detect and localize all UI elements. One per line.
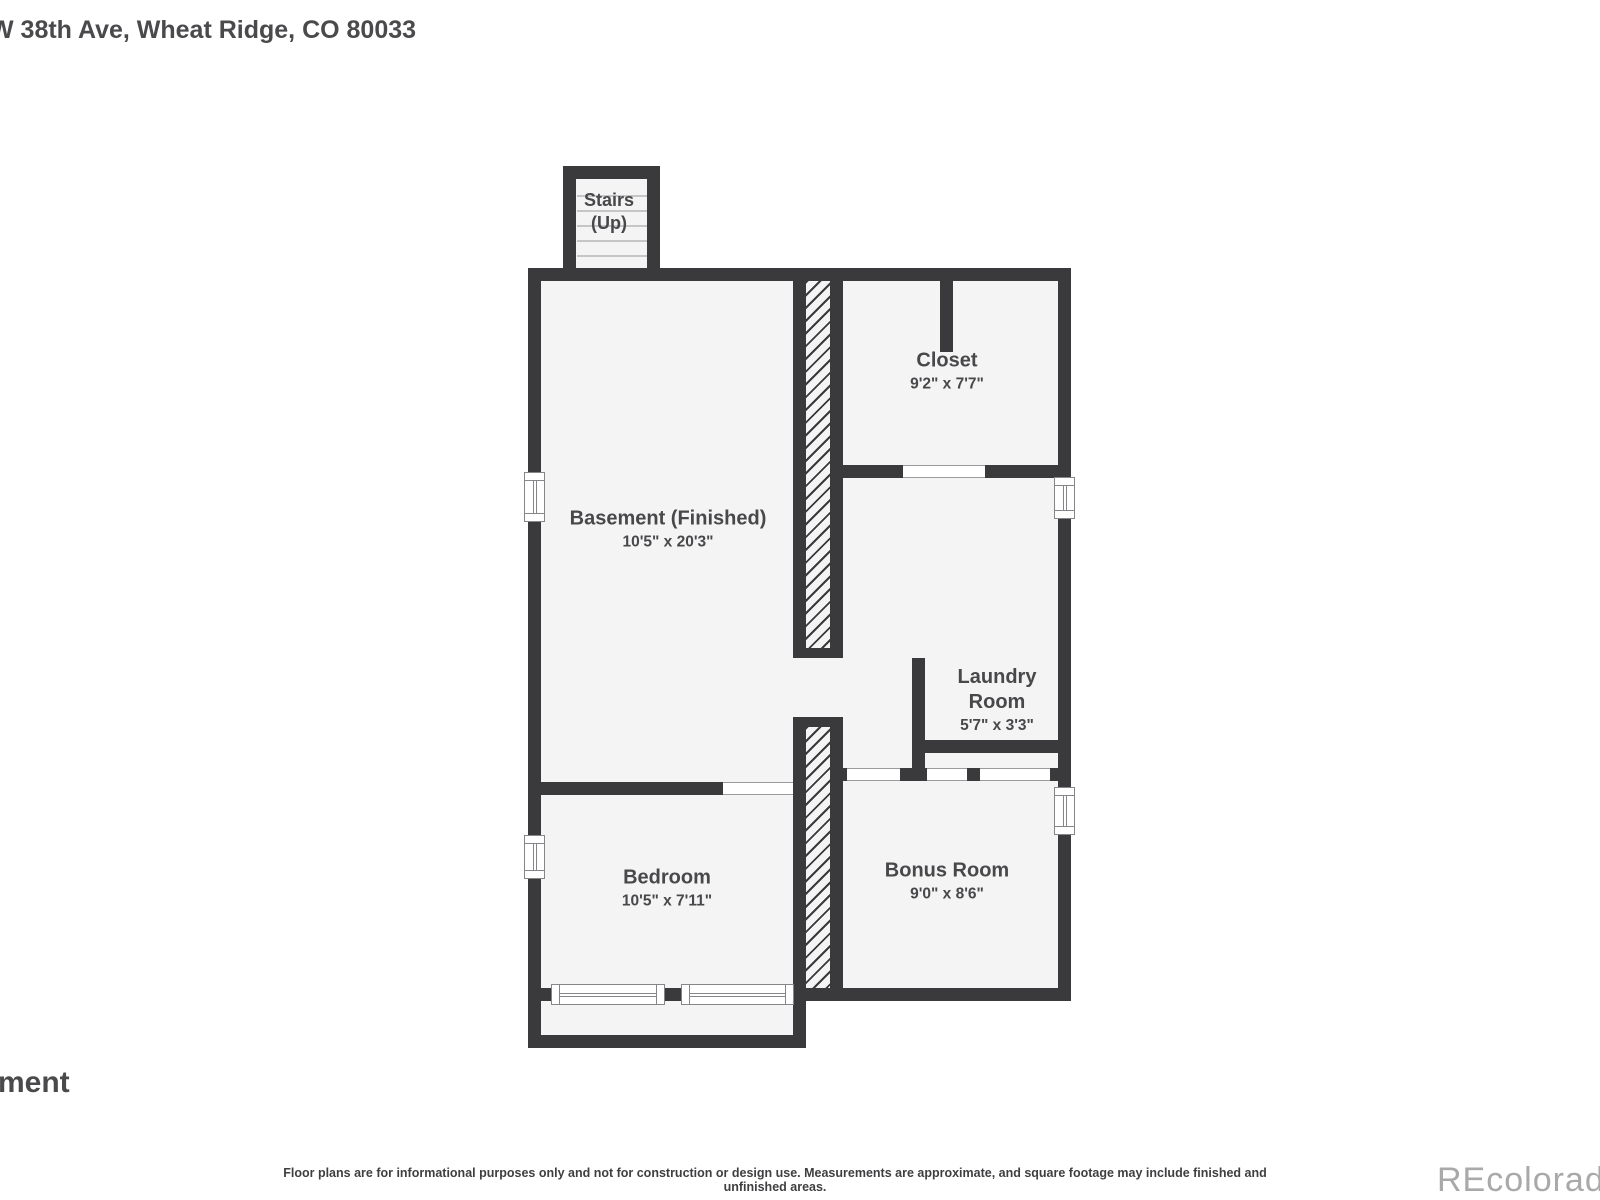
bedroom-bottom-wall-b [665,988,681,1001]
room-name: Bonus Room [885,859,1009,884]
disclaimer-text: Floor plans are for informational purpos… [283,1166,1267,1194]
bonus-top-wall-b [900,768,927,781]
room-label-stairs: Stairs (Up) [584,189,634,235]
closet-bottom-wall-left [843,465,903,478]
extension-floor [541,1001,793,1035]
bedroom-bottom-window-1 [551,984,665,1005]
stairs-wall-right [647,166,660,268]
room-sub: (Up) [584,212,634,235]
room-name: Bedroom [622,866,712,891]
bedroom-bottom-wall-a [528,988,551,1001]
stairwell-upper-wall-right [830,281,843,658]
stairwell-upper-cap [793,648,843,658]
right-wall-window-upper [1054,477,1075,519]
bedroom-left-window [524,835,545,879]
laundry-bottom-wall [925,740,1058,753]
stairwell-lower-cap [793,717,843,727]
stairwell-lower-wall-left [793,727,806,1001]
bedroom-door-opening [723,782,793,795]
room-dims: 9'2" x 7'7" [910,374,984,396]
floor-plan: Stairs (Up) Basement (Finished) 10'5" x … [0,0,1600,1200]
stairs-wall-top [563,166,660,179]
room-label-bedroom: Bedroom 10'5" x 7'11" [622,866,712,913]
bonus-door-opening-3 [980,768,1050,781]
basement-left-window [524,472,545,522]
floor-plan-page: { "title": "W 38th Ave, Wheat Ridge, CO … [0,0,1600,1200]
room-name: Basement (Finished) [570,507,767,532]
bonus-top-wall-c [967,768,980,781]
wall-top [528,268,1071,281]
bonus-door-opening-2 [927,768,967,781]
room-name-line1: Laundry [958,665,1037,690]
room-label-basement: Basement (Finished) 10'5" x 20'3" [570,507,767,554]
room-label-laundry: Laundry Room 5'7" x 3'3" [958,665,1037,737]
wall-left [528,268,541,1048]
bonus-top-wall-d [1050,768,1071,781]
room-dims: 9'0" x 8'6" [885,884,1009,906]
floor-label: ment [0,1066,70,1100]
wall-right [1058,268,1071,1001]
bedroom-bottom-window-2 [681,984,794,1005]
room-label-closet: Closet 9'2" x 7'7" [910,349,984,396]
stairwell-hatch-lower [806,727,830,988]
room-label-bonus: Bonus Room 9'0" x 8'6" [885,859,1009,906]
room-name-line2: Room [958,690,1037,715]
stairwell-lower-wall-right [830,727,843,1001]
recolorado-watermark: REcolorado [1437,1161,1600,1200]
closet-bottom-wall-right [985,465,1058,478]
closet-door-opening [903,465,985,478]
laundry-stub-wall [912,658,925,780]
room-dims: 10'5" x 20'3" [570,532,767,554]
extension-bottom-wall [528,1035,806,1048]
stairwell-upper-wall-left [793,281,806,658]
bonus-door-opening-1 [847,768,900,781]
room-name: Stairs [584,189,634,212]
room-name: Closet [910,349,984,374]
extension-right-wall [793,1001,806,1048]
stairs-wall-left [563,166,576,268]
bedroom-top-wall [528,782,723,795]
closet-stub-wall [940,281,953,352]
bonus-right-window [1054,787,1075,835]
stairwell-hatch-upper [806,281,830,648]
bonus-bottom-wall [833,988,1071,1001]
room-dims: 10'5" x 7'11" [622,891,712,913]
room-dims: 5'7" x 3'3" [958,715,1037,737]
